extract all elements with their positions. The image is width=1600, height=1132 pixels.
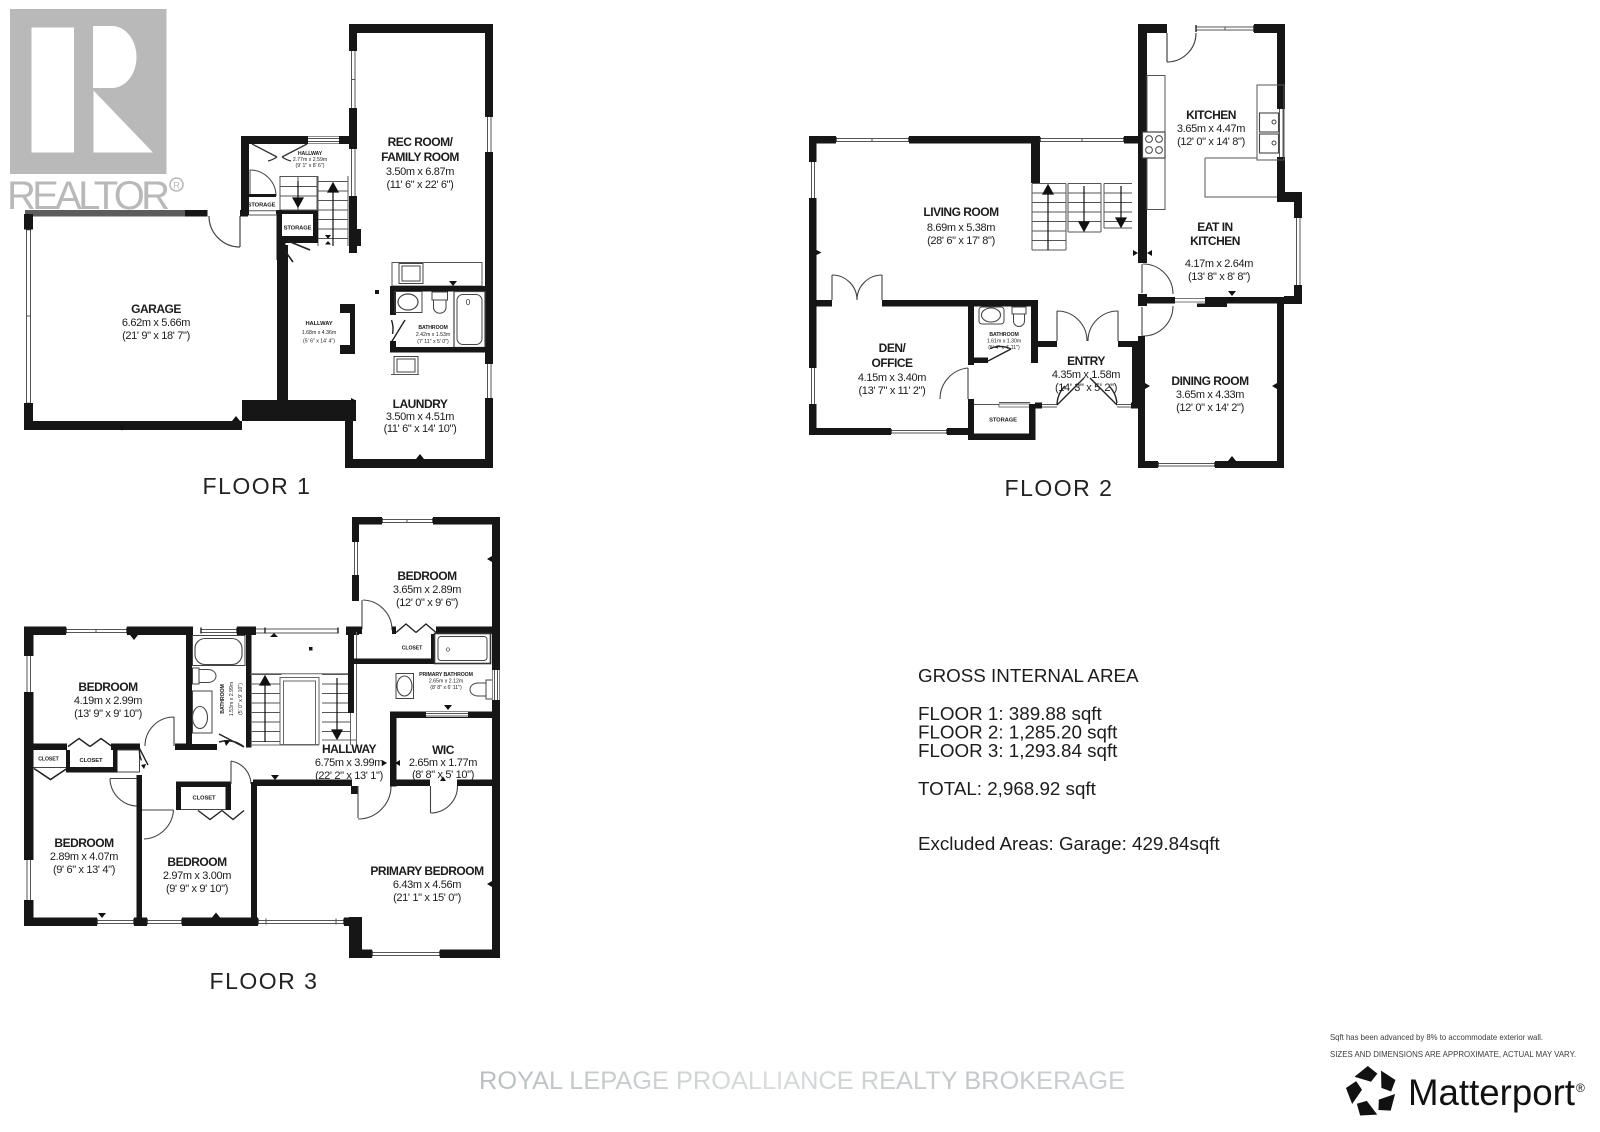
svg-text:(14' 3" x 5' 2"): (14' 3" x 5' 2") — [1055, 382, 1117, 394]
svg-text:HALLWAY: HALLWAY — [305, 321, 332, 327]
svg-text:4.35m x 1.58m: 4.35m x 1.58m — [1052, 369, 1120, 381]
svg-text:4.15m x 3.40m: 4.15m x 3.40m — [858, 372, 926, 384]
svg-text:(9' 1" x 8' 6"): (9' 1" x 8' 6") — [295, 163, 324, 169]
svg-text:1.68m x 4.36m: 1.68m x 4.36m — [302, 330, 336, 336]
svg-text:2.65m x 2.12m: 2.65m x 2.12m — [429, 679, 463, 685]
svg-text:FLOOR 2: FLOOR 2 — [1005, 475, 1114, 501]
svg-text:Matterport: Matterport — [1408, 1072, 1576, 1113]
svg-text:Sqft has been advanced by 8% t: Sqft has been advanced by 8% to accommod… — [1330, 1032, 1543, 1042]
svg-text:BATHROOM: BATHROOM — [220, 684, 226, 713]
svg-text:0: 0 — [466, 298, 471, 307]
svg-text:REC ROOM/: REC ROOM/ — [388, 135, 454, 149]
svg-text:KITCHEN: KITCHEN — [1186, 108, 1236, 122]
svg-text:6.62m x 5.66m: 6.62m x 5.66m — [122, 317, 190, 329]
svg-text:1.53m x 2.99m: 1.53m x 2.99m — [229, 682, 235, 716]
svg-text:LIVING ROOM: LIVING ROOM — [923, 205, 999, 219]
svg-text:2.97m x 3.00m: 2.97m x 3.00m — [163, 870, 231, 882]
svg-text:GARAGE: GARAGE — [131, 302, 181, 316]
svg-text:LAUNDRY: LAUNDRY — [393, 397, 448, 411]
svg-text:(12' 0" x 9' 6"): (12' 0" x 9' 6") — [396, 597, 458, 609]
svg-text:GROSS INTERNAL AREA: GROSS INTERNAL AREA — [918, 665, 1139, 686]
svg-text:4.17m x 2.64m: 4.17m x 2.64m — [1185, 258, 1253, 270]
svg-text:Excluded Areas: Garage: 429.84: Excluded Areas: Garage: 429.84sqft — [918, 833, 1221, 854]
svg-text:FLOOR 3: 1,293.84 sqft: FLOOR 3: 1,293.84 sqft — [918, 740, 1118, 761]
svg-text:ENTRY: ENTRY — [1067, 354, 1105, 368]
svg-text:BEDROOM: BEDROOM — [167, 855, 227, 869]
svg-text:R: R — [173, 181, 180, 192]
svg-text:(13' 8" x 8' 8"): (13' 8" x 8' 8") — [1188, 271, 1250, 283]
svg-text:o: o — [446, 645, 450, 654]
svg-text:(5' 4" x 4' 11"): (5' 4" x 4' 11") — [988, 345, 1020, 351]
svg-text:TOTAL: 2,968.92 sqft: TOTAL: 2,968.92 sqft — [918, 778, 1097, 799]
svg-text:HALLWAY: HALLWAY — [322, 742, 377, 756]
svg-text:PRIMARY BATHROOM: PRIMARY BATHROOM — [419, 672, 473, 678]
svg-text:CLOSET: CLOSET — [38, 757, 59, 763]
svg-text:®: ® — [1576, 1081, 1585, 1095]
svg-text:3.65m x 2.89m: 3.65m x 2.89m — [393, 584, 461, 596]
svg-text:(13' 7" x 11' 2"): (13' 7" x 11' 2") — [858, 385, 925, 397]
svg-text:ROYAL LEPAGE PROALLIANCE REALT: ROYAL LEPAGE PROALLIANCE REALTY BROKERAG… — [479, 1067, 1125, 1095]
svg-text:(5' 0" x 9' 10"): (5' 0" x 9' 10") — [238, 683, 244, 715]
svg-text:CLOSET: CLOSET — [193, 796, 216, 802]
svg-text:OFFICE: OFFICE — [872, 356, 913, 370]
svg-text:(21' 9" x 18' 7"): (21' 9" x 18' 7") — [122, 330, 190, 342]
svg-text:4.19m x 2.99m: 4.19m x 2.99m — [74, 695, 142, 707]
svg-text:(8' 8" x 6' 11"): (8' 8" x 6' 11") — [430, 685, 462, 691]
svg-text:1.61m x 1.30m: 1.61m x 1.30m — [987, 339, 1021, 345]
svg-text:STORAGE: STORAGE — [989, 418, 1017, 424]
svg-text:STORAGE: STORAGE — [248, 203, 276, 209]
svg-text:BEDROOM: BEDROOM — [54, 836, 114, 850]
svg-text:FAMILY ROOM: FAMILY ROOM — [381, 150, 459, 164]
svg-text:BEDROOM: BEDROOM — [397, 569, 457, 583]
svg-text:(5' 6" x 14' 4"): (5' 6" x 14' 4") — [303, 339, 335, 345]
svg-text:DEN/: DEN/ — [879, 341, 907, 355]
svg-text:3.65m x 4.47m: 3.65m x 4.47m — [1177, 123, 1245, 135]
svg-text:FLOOR 1: FLOOR 1 — [203, 473, 312, 499]
svg-text:BEDROOM: BEDROOM — [78, 680, 138, 694]
svg-text:6.43m x 4.56m: 6.43m x 4.56m — [393, 879, 461, 891]
svg-text:WIC: WIC — [432, 743, 455, 757]
svg-text:STORAGE: STORAGE — [284, 226, 312, 232]
svg-text:BATHROOM: BATHROOM — [989, 332, 1018, 338]
svg-text:(11' 6" x 22' 6"): (11' 6" x 22' 6") — [386, 179, 453, 191]
svg-text:3.50m x 6.87m: 3.50m x 6.87m — [386, 166, 454, 178]
svg-text:6.75m x 3.99m: 6.75m x 3.99m — [315, 757, 383, 769]
svg-text:(13' 9" x 9' 10"): (13' 9" x 9' 10") — [74, 708, 142, 720]
svg-text:BATHROOM: BATHROOM — [418, 325, 447, 331]
svg-text:2.42m x 1.53m: 2.42m x 1.53m — [416, 332, 450, 338]
svg-text:CLOSET: CLOSET — [80, 758, 103, 764]
svg-text:8.69m x 5.38m: 8.69m x 5.38m — [927, 222, 995, 234]
svg-text:(12' 0" x 14' 8"): (12' 0" x 14' 8") — [1177, 136, 1245, 148]
svg-text:KITCHEN: KITCHEN — [1190, 234, 1240, 248]
svg-text:(12' 0" x 14' 2"): (12' 0" x 14' 2") — [1176, 402, 1244, 414]
svg-text:3.65m x 4.33m: 3.65m x 4.33m — [1176, 389, 1244, 401]
svg-text:(9' 6" x 13' 4"): (9' 6" x 13' 4") — [53, 864, 115, 876]
svg-text:(28' 6" x 17' 8"): (28' 6" x 17' 8") — [927, 235, 995, 247]
svg-text:2.89m x 4.07m: 2.89m x 4.07m — [50, 851, 118, 863]
svg-text:(7' 11" x 5' 0"): (7' 11" x 5' 0") — [417, 339, 449, 345]
svg-text:(11' 6" x 14' 10"): (11' 6" x 14' 10") — [384, 423, 457, 435]
svg-text:3.50m x 4.51m: 3.50m x 4.51m — [386, 411, 454, 423]
svg-text:CLOSET: CLOSET — [402, 646, 423, 652]
svg-text:PRIMARY BEDROOM: PRIMARY BEDROOM — [370, 864, 484, 878]
svg-text:(9' 9" x 9' 10"): (9' 9" x 9' 10") — [166, 883, 228, 895]
svg-text:SIZES AND DIMENSIONS ARE APPRO: SIZES AND DIMENSIONS ARE APPROXIMATE, AC… — [1330, 1049, 1576, 1059]
svg-text:(21' 1" x 15' 0"): (21' 1" x 15' 0") — [393, 892, 461, 904]
svg-text:FLOOR 3: FLOOR 3 — [210, 968, 319, 994]
svg-text:DINING ROOM: DINING ROOM — [1171, 374, 1249, 388]
svg-text:2.65m x 1.77m: 2.65m x 1.77m — [409, 757, 477, 769]
svg-text:EAT IN: EAT IN — [1197, 220, 1232, 234]
